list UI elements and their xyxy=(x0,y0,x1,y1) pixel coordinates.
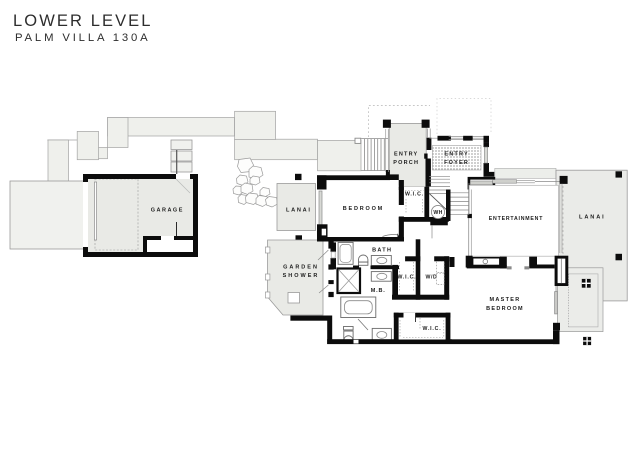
svg-text:PALM VILLA 130A: PALM VILLA 130A xyxy=(15,32,151,44)
svg-text:W/D: W/D xyxy=(425,274,437,280)
svg-text:LOWER LEVEL: LOWER LEVEL xyxy=(13,12,153,30)
svg-text:FOYER: FOYER xyxy=(444,160,469,166)
svg-text:GARDEN: GARDEN xyxy=(283,265,319,271)
svg-text:M.B.: M.B. xyxy=(371,288,386,294)
svg-text:LANAI: LANAI xyxy=(579,214,606,220)
svg-text:W.I.C.: W.I.C. xyxy=(405,192,424,198)
svg-text:BEDROOM: BEDROOM xyxy=(343,206,384,212)
svg-text:WH: WH xyxy=(433,210,442,216)
svg-text:ENTERTAINMENT: ENTERTAINMENT xyxy=(489,216,543,222)
svg-text:MASTER: MASTER xyxy=(489,297,520,303)
svg-text:ENTRY: ENTRY xyxy=(394,152,418,158)
svg-text:SHOWER: SHOWER xyxy=(283,273,320,279)
svg-text:GARAGE: GARAGE xyxy=(151,207,184,213)
svg-text:BATH: BATH xyxy=(372,247,392,253)
svg-text:LANAI: LANAI xyxy=(286,207,312,213)
svg-text:W.I.C.: W.I.C. xyxy=(423,326,442,332)
svg-text:ENTRY: ENTRY xyxy=(444,152,468,158)
svg-text:PORCH: PORCH xyxy=(393,160,419,166)
svg-text:BEDROOM: BEDROOM xyxy=(486,306,524,312)
